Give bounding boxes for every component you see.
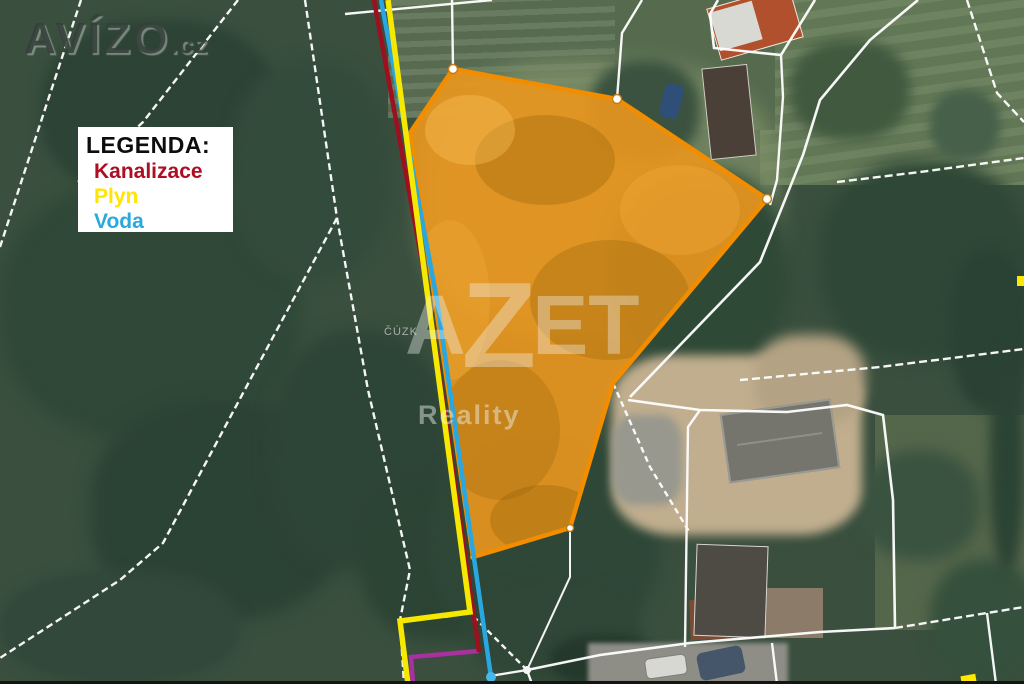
utility-line-unlabeled-purple <box>411 651 479 684</box>
aerial-map: AVÍZO.cz ČÚZK A Z ET Reality LEGENDA: Ka… <box>0 0 1024 684</box>
legend-title: LEGENDA: <box>86 132 225 159</box>
azet-watermark: A Z ET <box>405 266 640 384</box>
legend-box: LEGENDA: Kanalizace Plyn Voda <box>78 127 233 232</box>
legend-item-kanalizace: Kanalizace <box>94 159 225 184</box>
legend-item-voda: Voda <box>94 209 225 234</box>
avizo-logo-tld: .cz <box>170 29 208 59</box>
avizo-watermark: AVÍZO.cz <box>24 14 208 64</box>
legend-item-plyn: Plyn <box>94 184 225 209</box>
azet-tagline-watermark: Reality <box>418 400 521 431</box>
avizo-logo-text: AVÍZO <box>24 14 170 63</box>
